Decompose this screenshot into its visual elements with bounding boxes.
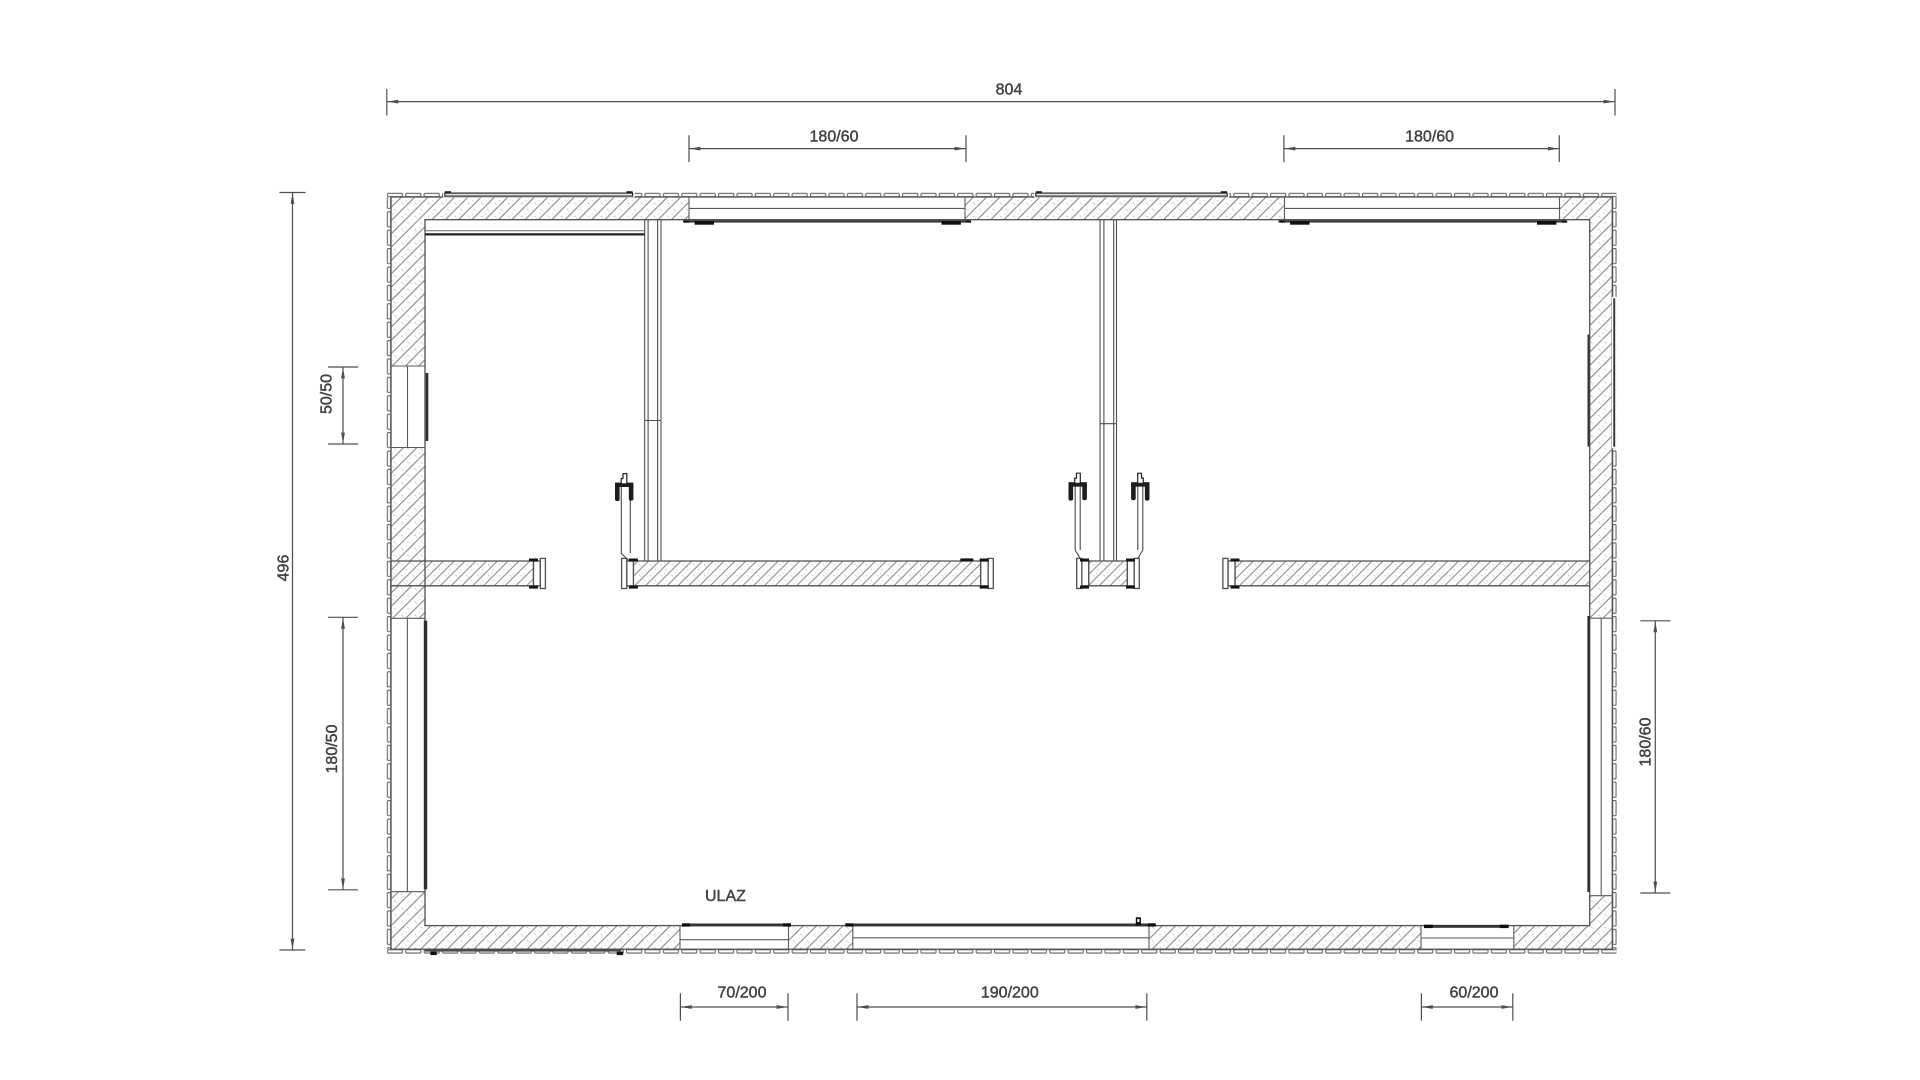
svg-text:180/60: 180/60	[1405, 128, 1454, 145]
svg-text:180/60: 180/60	[810, 128, 859, 145]
svg-text:190/200: 190/200	[981, 984, 1039, 1001]
svg-text:ULAZ: ULAZ	[705, 888, 746, 905]
svg-text:180/50: 180/50	[324, 724, 341, 773]
svg-text:496: 496	[276, 555, 293, 582]
svg-text:180/60: 180/60	[1638, 717, 1655, 766]
svg-text:70/200: 70/200	[718, 984, 767, 1001]
svg-text:804: 804	[996, 82, 1023, 99]
svg-text:50/50: 50/50	[319, 374, 336, 414]
svg-text:60/200: 60/200	[1450, 984, 1499, 1001]
